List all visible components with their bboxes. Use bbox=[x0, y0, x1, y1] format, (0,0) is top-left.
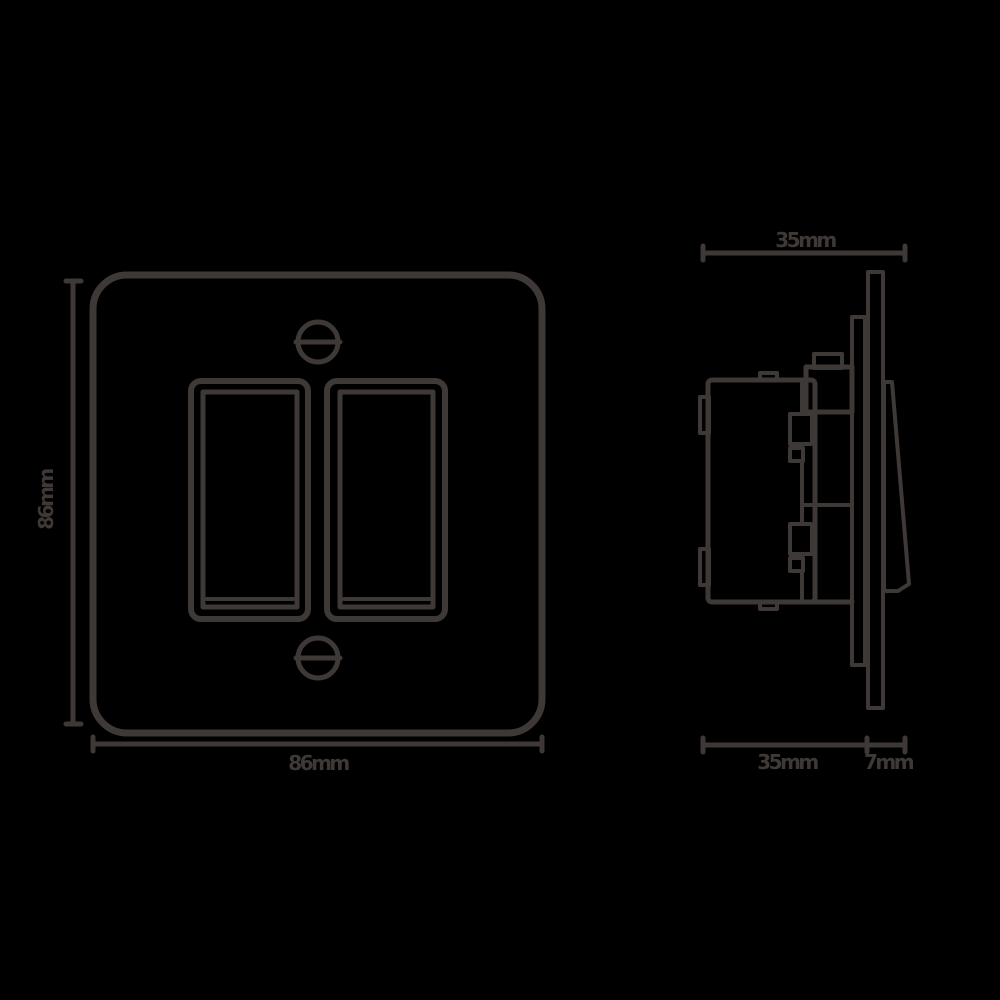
screw-top-icon bbox=[296, 322, 340, 362]
front-view bbox=[66, 275, 542, 751]
mechanism-box bbox=[700, 373, 852, 609]
switch-technical-drawing: 86mm 86mm bbox=[0, 0, 1000, 1000]
dimension-diagram: 86mm 86mm bbox=[0, 0, 1000, 1000]
rocker-side-profile bbox=[884, 382, 909, 591]
faceplate-depth-label: 7mm bbox=[864, 750, 914, 774]
rocker-left bbox=[191, 381, 308, 619]
height-dimension-label: 86mm bbox=[34, 469, 58, 530]
rocker-right bbox=[327, 381, 445, 619]
width-dimension-line bbox=[93, 737, 542, 751]
faceplate-side bbox=[868, 272, 883, 708]
width-dimension-label: 86mm bbox=[288, 751, 349, 775]
back-plate-side bbox=[852, 317, 865, 665]
overall-depth-label: 35mm bbox=[775, 228, 836, 252]
height-dimension-line bbox=[66, 281, 81, 724]
side-view bbox=[700, 246, 909, 752]
box-depth-label: 35mm bbox=[757, 750, 818, 774]
screw-bottom-icon bbox=[296, 638, 340, 678]
